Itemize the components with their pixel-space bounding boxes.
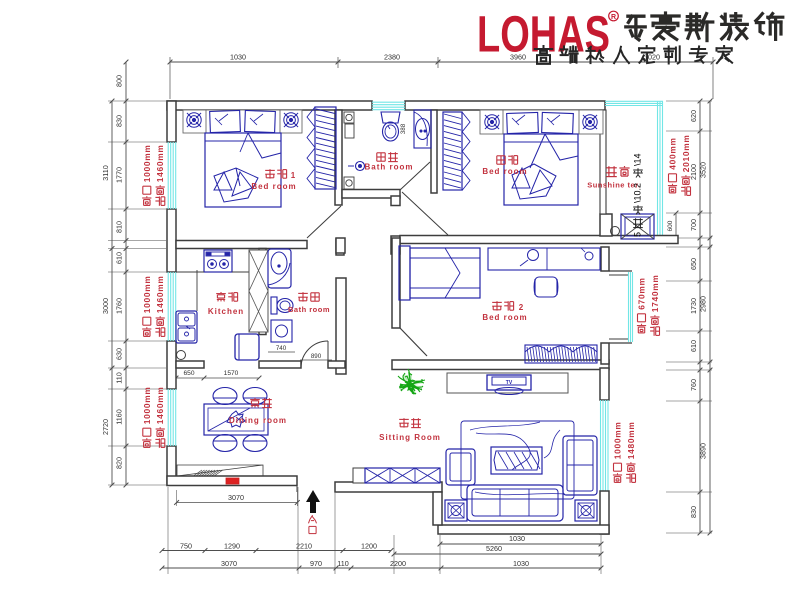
svg-text:750: 750	[180, 542, 192, 551]
svg-text:620: 620	[689, 110, 698, 122]
svg-text:630: 630	[115, 348, 124, 360]
svg-text:1: 1	[291, 171, 296, 180]
svg-text:3110: 3110	[101, 165, 110, 180]
svg-text:Bath room: Bath room	[365, 163, 414, 172]
svg-text:600: 600	[667, 220, 674, 231]
svg-text:1200: 1200	[361, 542, 377, 551]
svg-text:740: 740	[276, 345, 287, 352]
svg-text:5: 5	[633, 232, 643, 237]
svg-text:1000mm: 1000mm	[142, 275, 152, 313]
svg-text:2720: 2720	[101, 419, 110, 435]
svg-text:670mm: 670mm	[637, 277, 647, 309]
svg-text:1000mm: 1000mm	[142, 144, 152, 182]
svg-text:1570: 1570	[224, 370, 239, 377]
svg-text:2210: 2210	[296, 542, 312, 551]
svg-text:810: 810	[115, 221, 124, 233]
svg-text:Sitting Room: Sitting Room	[379, 433, 441, 442]
svg-text:110: 110	[115, 372, 124, 383]
svg-text:388: 388	[400, 123, 407, 134]
svg-text:1030: 1030	[513, 559, 529, 568]
svg-text:650: 650	[183, 370, 194, 377]
svg-text:700: 700	[689, 219, 698, 231]
svg-text:\10.2: \10.2	[633, 183, 643, 203]
svg-text:650: 650	[689, 258, 698, 270]
svg-text:2980: 2980	[699, 296, 708, 312]
svg-text:Bed room: Bed room	[251, 182, 296, 191]
svg-text:1000mm: 1000mm	[613, 421, 623, 459]
svg-text:830: 830	[115, 115, 124, 127]
svg-text:Bed room: Bed room	[482, 167, 527, 176]
svg-text:1730: 1730	[689, 298, 698, 314]
svg-text:\14: \14	[633, 153, 643, 166]
svg-text:1740mm: 1740mm	[650, 274, 660, 312]
svg-text:R: R	[611, 14, 616, 21]
svg-text:3890: 3890	[699, 443, 708, 459]
svg-text:110: 110	[337, 559, 348, 568]
svg-text:3520: 3520	[699, 162, 708, 178]
svg-text:2010mm: 2010mm	[681, 134, 691, 172]
svg-text:TV: TV	[506, 380, 513, 386]
svg-text:1770: 1770	[115, 167, 124, 183]
svg-text:1460mm: 1460mm	[155, 275, 165, 313]
svg-text:1160: 1160	[115, 409, 124, 424]
svg-text:1460mm: 1460mm	[155, 144, 165, 182]
svg-text:1000mm: 1000mm	[142, 386, 152, 424]
svg-text:2: 2	[519, 303, 524, 312]
svg-text:760: 760	[689, 379, 698, 391]
svg-text:2200: 2200	[390, 559, 406, 568]
svg-text:610: 610	[689, 340, 698, 352]
svg-text:1760: 1760	[115, 298, 124, 314]
svg-text:830: 830	[689, 506, 698, 518]
svg-text:5260: 5260	[486, 544, 502, 553]
svg-text:820: 820	[115, 457, 124, 469]
svg-text:1030: 1030	[230, 53, 246, 62]
svg-text:Bath room: Bath room	[288, 305, 330, 314]
svg-text:1480mm: 1480mm	[626, 421, 636, 459]
svg-text:3000: 3000	[101, 298, 110, 314]
svg-text:2380: 2380	[384, 53, 400, 62]
svg-text:400mm: 400mm	[668, 137, 678, 169]
svg-text:1460mm: 1460mm	[155, 386, 165, 424]
svg-text:3070: 3070	[228, 493, 244, 502]
svg-text:800: 800	[115, 75, 124, 87]
svg-text:1290: 1290	[224, 542, 240, 551]
svg-text:970: 970	[310, 559, 322, 568]
svg-text:1030: 1030	[509, 534, 525, 543]
svg-text:Dining room: Dining room	[229, 416, 287, 425]
svg-text:Kitchen: Kitchen	[208, 307, 244, 316]
svg-text:Bed room: Bed room	[482, 313, 527, 322]
svg-text:610: 610	[115, 252, 124, 264]
svg-text:890: 890	[311, 353, 322, 360]
svg-text:3070: 3070	[221, 559, 237, 568]
